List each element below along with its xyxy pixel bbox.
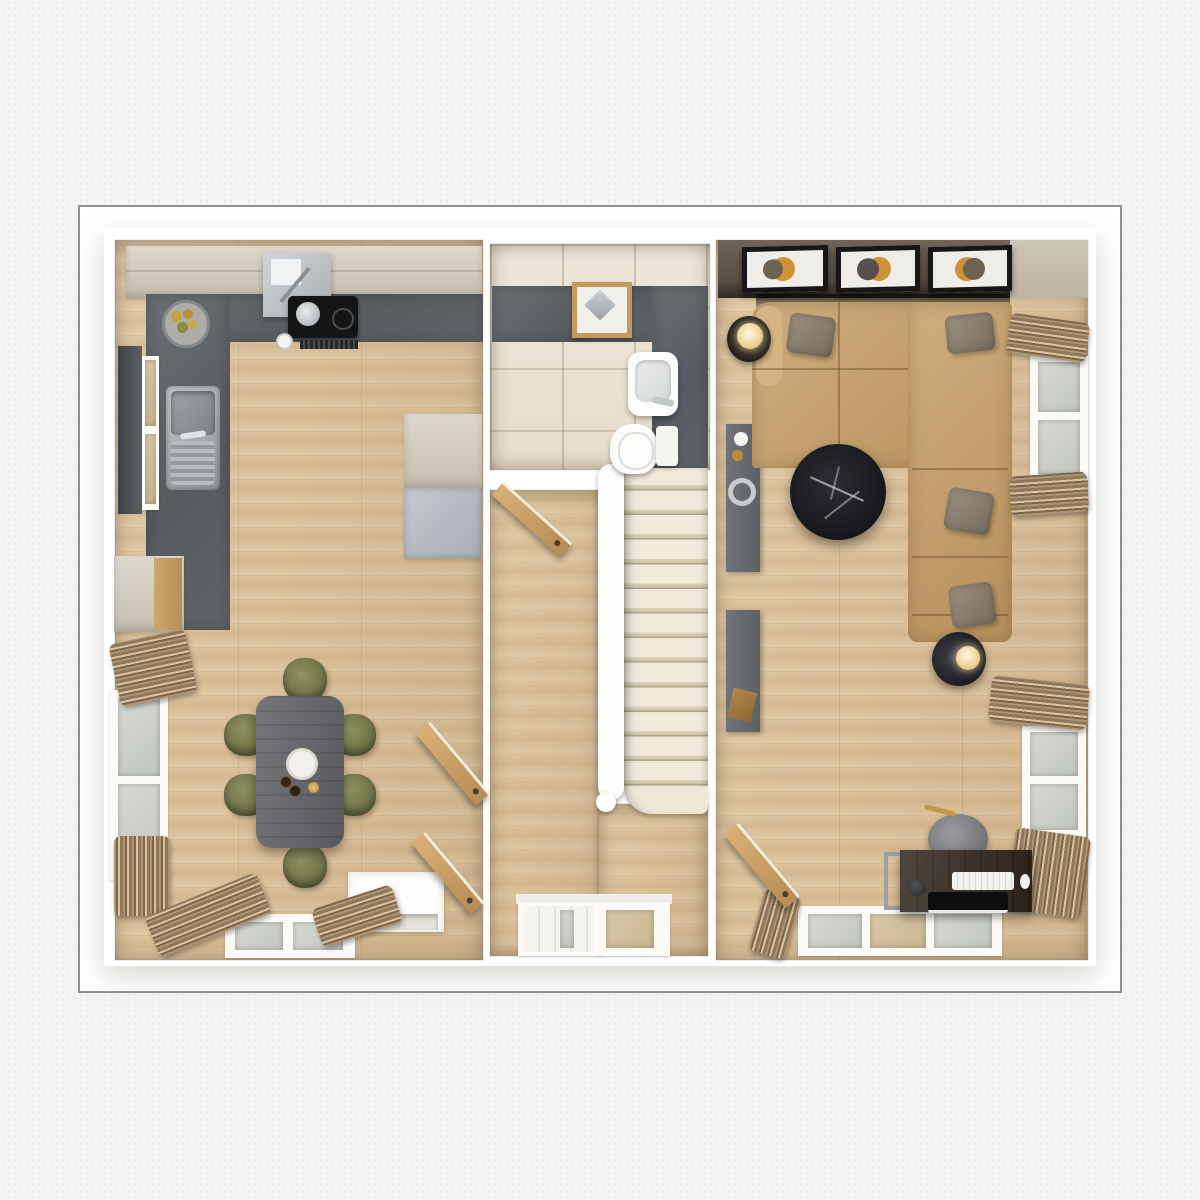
toilet-seat [618,432,654,470]
wall-art-frame [928,245,1012,293]
window-pane [808,914,862,948]
window-pane [1038,362,1080,412]
decor-ring [728,478,756,506]
window-pane [1030,732,1078,776]
fruit [188,320,197,329]
saucepan [296,302,320,326]
throw-pillow [943,486,996,535]
wall-art-frame [836,245,920,293]
staircase [624,468,708,788]
door-handle [472,787,480,795]
window-pane [934,914,992,948]
throw-pillow [944,312,996,355]
door-handle [553,539,561,547]
window-pane [235,922,283,950]
kitchen-side-window [142,356,159,510]
stair-bullnose-step [624,786,708,814]
hallway-floor [490,490,602,956]
keyboard [952,872,1014,890]
door-handle [781,890,789,898]
floor-plan-render [0,0,1200,1200]
tray-cloth [584,289,615,320]
fruit [171,311,182,322]
window-pane [1038,420,1080,474]
tall-cabinet [404,414,482,488]
sideboard-door [154,558,182,630]
induction-hob [288,296,358,338]
tray-side-lamp [932,632,986,686]
fridge-freezer [404,488,481,558]
cake-stand [286,748,318,780]
coffee-table [790,444,886,540]
fruit-bowl [162,300,210,348]
kitchen-sink [166,386,220,490]
marble-vein [830,466,840,499]
sink-bowl [171,391,215,435]
door-handle [466,896,474,904]
living-side-window [1022,726,1086,838]
dining-chair [283,844,327,888]
vanity-tray-mirror [572,282,632,338]
extractor-vent [300,340,358,349]
lamp-glow [956,646,980,670]
window-pane [145,434,156,504]
floor-lamp [727,316,771,362]
front-door [524,906,594,952]
storage-console [726,610,760,732]
feature-wall-corner [1010,240,1088,298]
sofa-seam [912,556,1008,558]
window-pane [1030,784,1078,830]
stair-banister [598,464,624,800]
desk-plant [908,878,926,896]
door-glass-slot [560,910,574,948]
washbasin [628,352,678,416]
marble-vein [824,491,860,520]
throw-pillow [785,312,836,358]
window-pane [870,914,926,948]
kitchen-sideboard [114,556,184,632]
curtain-bundle [1009,471,1090,516]
bottle [289,785,301,797]
door-sidelight [606,910,654,948]
living-side-window [1030,356,1088,480]
window-pane [145,360,156,426]
sofa-seam [912,468,1008,470]
wall-art-frame [742,245,828,293]
toilet [610,424,658,474]
window-pane [118,698,160,776]
art-moon [963,258,985,281]
toilet-cistern [656,426,678,466]
chrome-tap [652,396,675,407]
vase [734,432,748,446]
coffee-cup [276,333,293,350]
candle [308,782,319,793]
brass-tray [732,450,743,461]
marble-vein [810,476,864,501]
dining-table [256,696,344,848]
living-bottom-window [798,906,1002,956]
hob-burner-ring [332,308,354,330]
desk-frame-leg [884,852,888,910]
lamp-glow [737,323,763,349]
fruit [183,309,193,319]
newel-post [596,792,616,812]
mouse [1020,874,1030,889]
curtain-bundle [114,836,170,916]
front-door-unit [518,902,670,956]
window-blind [118,346,142,514]
laptop [928,892,1008,913]
desk [900,850,1032,912]
wood-magazine [727,688,758,723]
throw-pillow [947,581,996,629]
fruit [177,322,188,333]
sink-drainer [171,441,215,485]
